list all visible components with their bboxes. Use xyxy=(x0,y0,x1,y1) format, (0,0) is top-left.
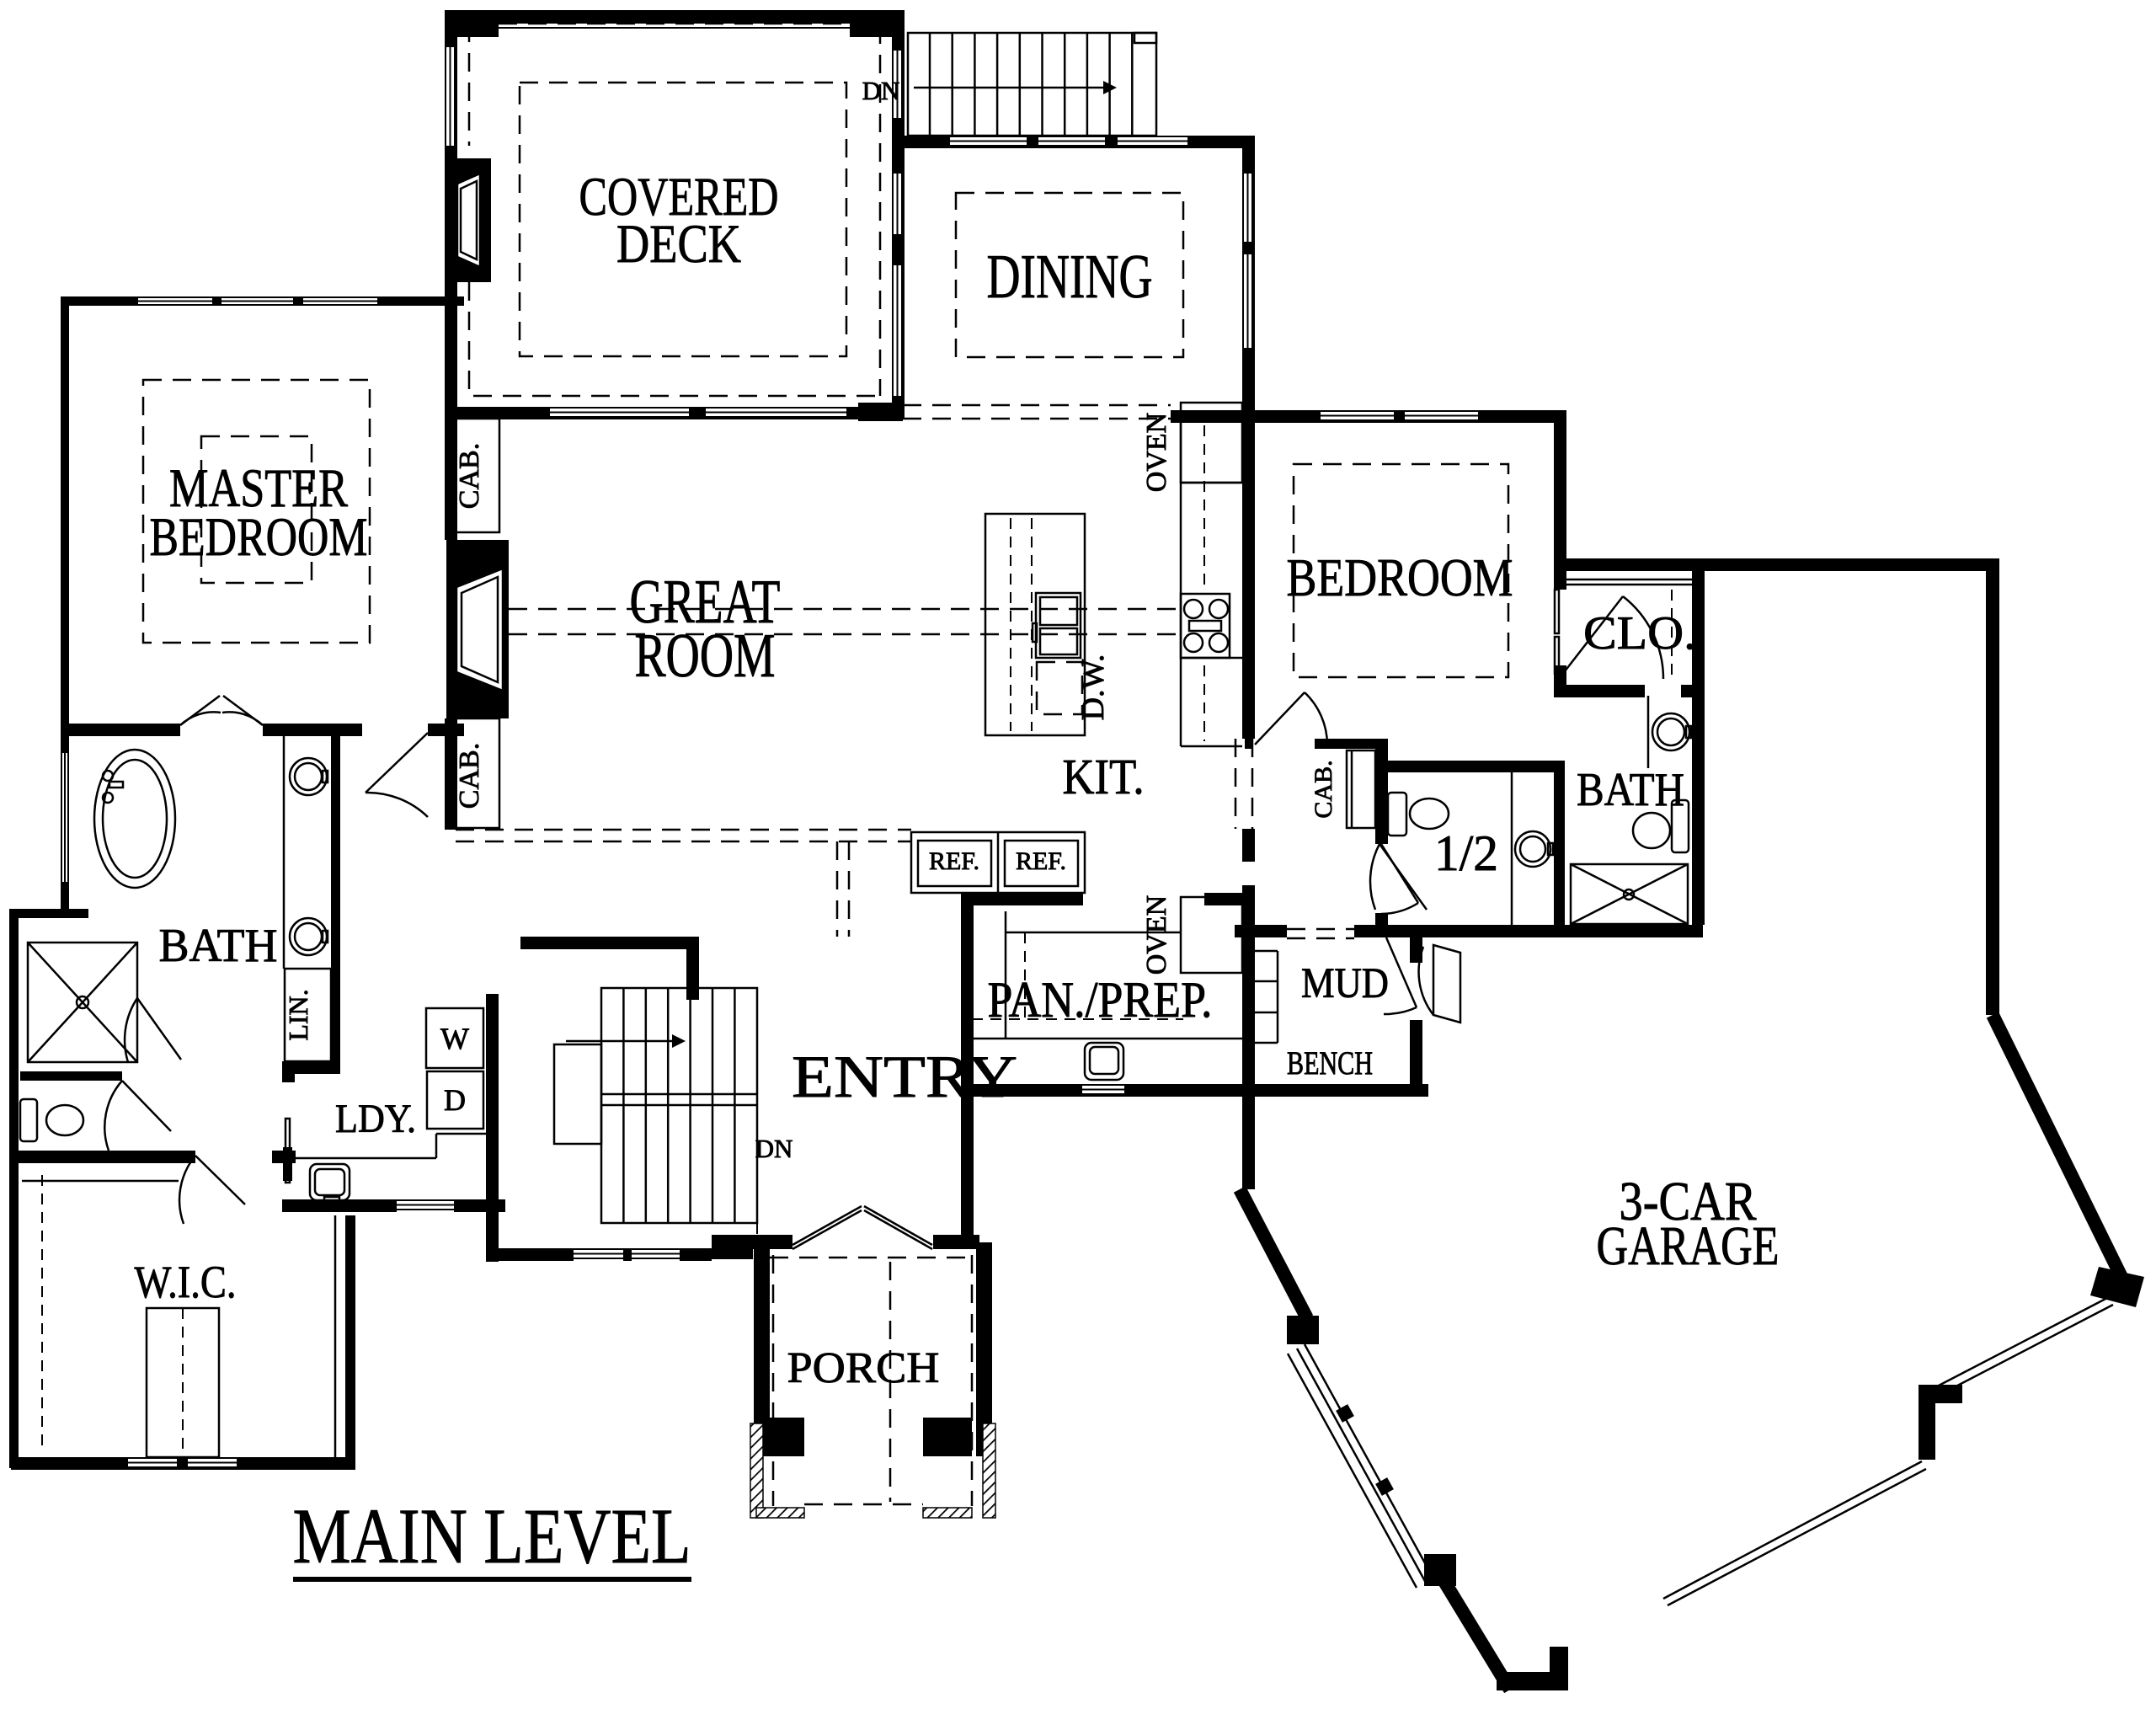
svg-text:CAB.: CAB. xyxy=(1310,760,1337,818)
svg-text:MAIN LEVEL: MAIN LEVEL xyxy=(293,1493,691,1580)
svg-text:W: W xyxy=(440,1022,469,1055)
svg-text:BATH: BATH xyxy=(1577,764,1684,816)
svg-text:BATH: BATH xyxy=(159,920,278,972)
svg-text:ENTRY: ENTRY xyxy=(792,1044,1017,1110)
svg-text:1/2: 1/2 xyxy=(1434,825,1498,881)
svg-text:BEDROOM: BEDROOM xyxy=(1287,548,1513,607)
svg-text:ROOM: ROOM xyxy=(635,622,776,691)
svg-text:DN: DN xyxy=(862,76,900,105)
svg-text:REF.: REF. xyxy=(1016,847,1066,875)
svg-text:OVEN: OVEN xyxy=(1141,413,1172,492)
svg-text:REF.: REF. xyxy=(929,847,979,875)
svg-text:LDY.: LDY. xyxy=(335,1097,416,1141)
svg-text:DINING: DINING xyxy=(987,243,1153,312)
svg-text:W.I.C.: W.I.C. xyxy=(135,1257,237,1307)
svg-text:OVEN: OVEN xyxy=(1141,895,1172,975)
svg-text:DN: DN xyxy=(755,1134,793,1163)
svg-text:BENCH: BENCH xyxy=(1287,1045,1373,1081)
svg-text:MUD: MUD xyxy=(1301,960,1389,1007)
svg-text:CAB.: CAB. xyxy=(454,443,485,509)
svg-text:BEDROOM: BEDROOM xyxy=(150,507,368,568)
svg-text:CAB.: CAB. xyxy=(454,743,485,809)
svg-text:KIT.: KIT. xyxy=(1063,749,1145,804)
svg-text:PAN./PREP.: PAN./PREP. xyxy=(988,972,1213,1028)
svg-text:CLO.: CLO. xyxy=(1583,607,1696,660)
svg-text:D: D xyxy=(444,1083,466,1117)
svg-text:DECK: DECK xyxy=(616,214,741,275)
svg-text:PORCH: PORCH xyxy=(787,1344,940,1392)
svg-text:LIN.: LIN. xyxy=(283,989,313,1040)
svg-text:GARAGE: GARAGE xyxy=(1597,1215,1780,1277)
svg-text:D.W.: D.W. xyxy=(1075,654,1111,721)
